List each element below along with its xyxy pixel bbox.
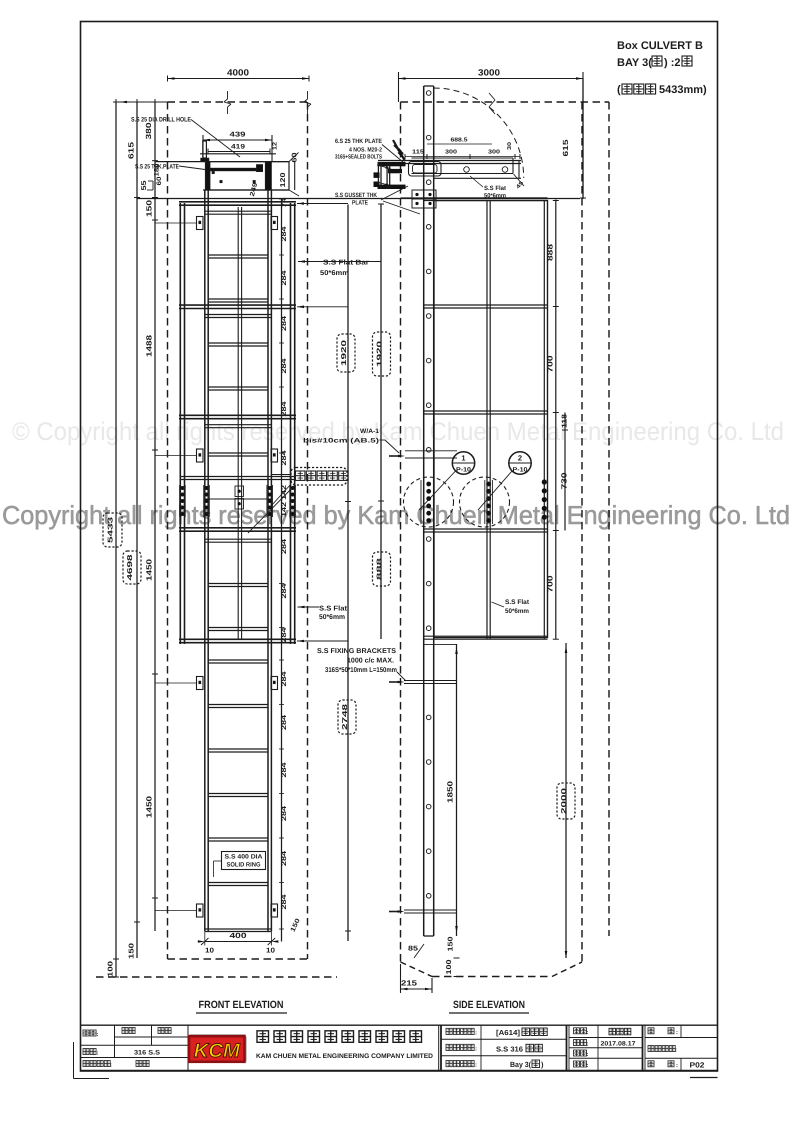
svg-text:50*6mm: 50*6mm — [320, 270, 349, 277]
svg-text:284: 284 — [281, 270, 288, 285]
svg-text::: : — [110, 1063, 112, 1069]
svg-text:700: 700 — [546, 356, 555, 373]
svg-text:5433mm): 5433mm) — [659, 84, 707, 96]
svg-text:316 S.S: 316 S.S — [134, 1050, 161, 1057]
svg-text:150: 150 — [448, 936, 455, 951]
svg-text:© Copyright all rights reserve: © Copyright all rights reserved by Kam C… — [12, 418, 784, 446]
svg-text:439: 439 — [230, 132, 246, 139]
svg-text:S.S Flat: S.S Flat — [319, 605, 348, 613]
svg-text:KAM CHUEN METAL ENGINEERING CO: KAM CHUEN METAL ENGINEERING COMPANY LIMI… — [256, 1053, 433, 1060]
svg-text::: : — [587, 1030, 589, 1036]
svg-text:1450: 1450 — [145, 559, 154, 581]
svg-text:KCM: KCM — [194, 1040, 241, 1062]
svg-text:Bay 3(: Bay 3( — [510, 1060, 531, 1069]
svg-text::: : — [587, 1063, 589, 1069]
svg-text:284: 284 — [281, 583, 288, 598]
svg-text:284: 284 — [281, 671, 288, 686]
svg-text:10: 10 — [205, 948, 214, 955]
svg-text:Copyright all rights reserved: Copyright all rights reserved by Kam Chu… — [2, 500, 790, 530]
svg-text::: : — [587, 1052, 589, 1058]
svg-text:2: 2 — [518, 454, 522, 463]
svg-text:284: 284 — [281, 715, 288, 730]
svg-text:284: 284 — [281, 226, 288, 241]
svg-text:12: 12 — [272, 141, 279, 150]
svg-text:615: 615 — [561, 140, 570, 157]
svg-text:bis#10cm (AB.5): bis#10cm (AB.5) — [303, 438, 379, 445]
svg-text:SOLID RING: SOLID RING — [227, 862, 261, 869]
svg-text::: : — [475, 1063, 477, 1069]
svg-text:60: 60 — [292, 152, 299, 162]
svg-text:1850: 1850 — [446, 781, 455, 803]
svg-text:3000: 3000 — [478, 68, 500, 78]
svg-text:100: 100 — [108, 961, 115, 977]
svg-text:615: 615 — [127, 142, 136, 159]
svg-text::: : — [97, 1051, 99, 1057]
svg-text:284: 284 — [281, 401, 288, 416]
svg-text:) :2: ) :2 — [664, 57, 681, 69]
svg-text:4000: 4000 — [227, 68, 249, 78]
svg-text:4 NOS. M20-2: 4 NOS. M20-2 — [349, 147, 383, 154]
svg-text:50*6mm: 50*6mm — [484, 193, 506, 200]
svg-text:50*6mm: 50*6mm — [319, 614, 345, 621]
svg-text:1920: 1920 — [341, 340, 348, 366]
svg-text:2748: 2748 — [342, 704, 349, 730]
svg-text:284: 284 — [281, 358, 288, 373]
svg-text:316S*50*10mm L=150mm: 316S*50*10mm L=150mm — [325, 667, 397, 674]
svg-text:688.5: 688.5 — [451, 137, 469, 144]
svg-text:(: ( — [617, 84, 621, 96]
svg-text:120: 120 — [280, 172, 287, 187]
svg-text:FRONT ELEVATION: FRONT ELEVATION — [199, 999, 284, 1011]
svg-text:60: 60 — [156, 176, 163, 185]
svg-text:2000: 2000 — [561, 788, 568, 814]
svg-text::: : — [676, 1030, 678, 1036]
svg-text:300: 300 — [488, 149, 500, 156]
svg-text:118: 118 — [562, 414, 569, 428]
svg-text:6.S 25 THK PLATE: 6.S 25 THK PLATE — [335, 138, 382, 145]
svg-text:284: 284 — [281, 450, 288, 465]
svg-text:P-10: P-10 — [456, 467, 472, 474]
svg-text:1450: 1450 — [145, 796, 154, 818]
svg-text:142: 142 — [281, 502, 288, 517]
svg-text:284: 284 — [281, 316, 288, 331]
svg-text:150: 150 — [145, 200, 154, 217]
svg-text:100: 100 — [446, 959, 453, 974]
svg-text:S.S GUSSET THK: S.S GUSSET THK — [335, 192, 377, 199]
svg-text:150: 150 — [129, 943, 136, 959]
svg-text:284: 284 — [281, 894, 288, 909]
svg-text:284: 284 — [281, 539, 288, 554]
svg-text:730: 730 — [560, 473, 569, 490]
svg-text:300: 300 — [445, 149, 457, 156]
svg-text::: : — [475, 1047, 477, 1053]
svg-text:1000 c/c MAX.: 1000 c/c MAX. — [347, 657, 394, 665]
svg-text:316S+SEALED BOLTS: 316S+SEALED BOLTS — [335, 154, 382, 161]
svg-text:400: 400 — [230, 931, 247, 940]
svg-text:419: 419 — [231, 144, 245, 151]
svg-text:888: 888 — [546, 244, 555, 261]
svg-text:1920: 1920 — [377, 341, 384, 367]
svg-text:1: 1 — [461, 454, 465, 463]
svg-text:10: 10 — [266, 948, 275, 955]
svg-text:4698: 4698 — [127, 554, 134, 580]
svg-text:S.S Flat: S.S Flat — [505, 599, 530, 606]
svg-text:2017.08.17: 2017.08.17 — [601, 1040, 637, 1047]
svg-text:50*6mm: 50*6mm — [505, 608, 529, 615]
svg-text:85: 85 — [408, 946, 418, 953]
svg-text:380: 380 — [144, 123, 153, 140]
svg-text:700: 700 — [546, 576, 555, 593]
svg-text:SIDE ELEVATION: SIDE ELEVATION — [453, 999, 525, 1011]
svg-text:S.S 25 DIA DRILL HOLE: S.S 25 DIA DRILL HOLE — [131, 117, 192, 124]
svg-text:S.S Flat Bar: S.S Flat Bar — [323, 259, 369, 267]
svg-text:888: 888 — [377, 558, 384, 580]
svg-text:215: 215 — [401, 979, 417, 988]
svg-text:142: 142 — [281, 485, 288, 500]
svg-text::: : — [587, 1042, 589, 1048]
svg-text:S.S 25 THK.PLATE: S.S 25 THK.PLATE — [135, 164, 180, 171]
svg-text:BAY 3(: BAY 3( — [617, 57, 652, 69]
svg-text:S.S 316: S.S 316 — [496, 1045, 523, 1054]
svg-text:115: 115 — [412, 150, 425, 156]
svg-text::: : — [97, 1032, 99, 1038]
svg-text:284: 284 — [281, 627, 288, 642]
svg-text:[A614]: [A614] — [496, 1028, 520, 1037]
svg-text:284: 284 — [281, 762, 288, 777]
svg-text:S.S Flat: S.S Flat — [484, 185, 506, 192]
svg-text:55: 55 — [141, 180, 148, 190]
svg-text::: : — [675, 1048, 677, 1054]
svg-text:Box CULVERT B: Box CULVERT B — [617, 40, 703, 52]
svg-text:W/A-1: W/A-1 — [360, 428, 379, 435]
svg-text:284: 284 — [281, 806, 288, 821]
svg-text:S.S 400 DIA: S.S 400 DIA — [225, 854, 264, 861]
svg-text:284: 284 — [281, 851, 288, 866]
svg-text::: : — [475, 1031, 477, 1037]
svg-text:P02: P02 — [690, 1060, 705, 1069]
svg-text:PLATE: PLATE — [352, 200, 368, 207]
svg-text:S.S FIXING BRACKETS: S.S FIXING BRACKETS — [317, 648, 396, 655]
svg-text:P-10: P-10 — [513, 467, 529, 474]
svg-text::: : — [676, 1063, 678, 1069]
svg-text:1488: 1488 — [145, 335, 154, 357]
svg-text:5433: 5433 — [108, 517, 115, 543]
svg-text:30: 30 — [507, 142, 513, 150]
